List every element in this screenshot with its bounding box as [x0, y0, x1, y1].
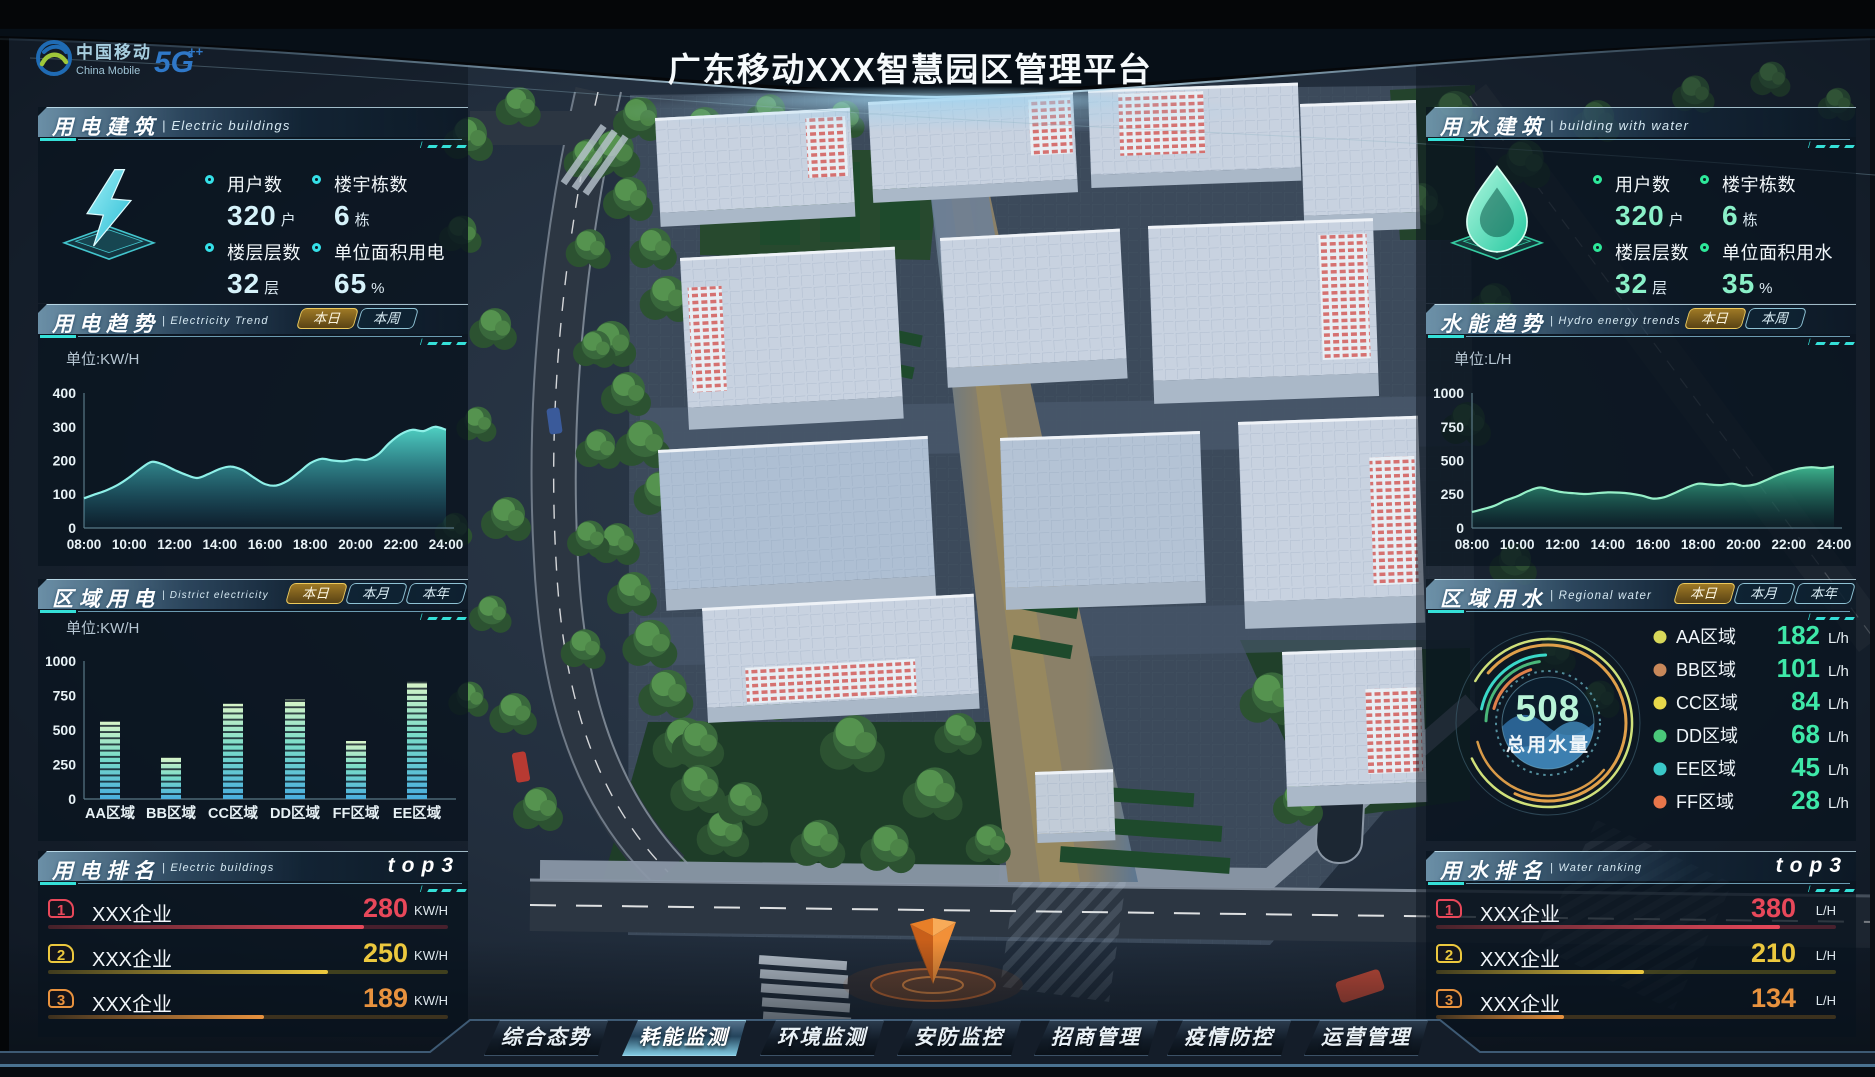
svg-text:12:00: 12:00: [157, 537, 192, 552]
svg-text:84: 84: [1791, 686, 1820, 716]
svg-text:L/h: L/h: [1828, 729, 1849, 746]
svg-text:L/h: L/h: [1828, 663, 1849, 680]
svg-text:20:00: 20:00: [338, 537, 373, 552]
svg-text:BB区域: BB区域: [146, 804, 196, 822]
svg-text:22:00: 22:00: [384, 537, 419, 552]
svg-text:750: 750: [53, 688, 77, 704]
svg-text:1000: 1000: [1434, 386, 1464, 401]
svg-text:DD区域: DD区域: [270, 804, 320, 822]
svg-text:14:00: 14:00: [1591, 537, 1626, 552]
svg-text:45: 45: [1791, 752, 1820, 782]
svg-text:500: 500: [1441, 453, 1465, 469]
svg-text:10:00: 10:00: [1500, 537, 1535, 552]
svg-text:200: 200: [53, 453, 77, 469]
svg-text:L/h: L/h: [1828, 630, 1849, 647]
svg-text:24:00: 24:00: [429, 537, 464, 552]
svg-text:单位:KW/H: 单位:KW/H: [66, 620, 139, 637]
svg-text:总用水量: 总用水量: [1506, 733, 1590, 756]
svg-text:14:00: 14:00: [203, 537, 238, 552]
svg-text:BB区域: BB区域: [1676, 660, 1736, 680]
svg-text:10:00: 10:00: [112, 537, 147, 552]
svg-text:DD区域: DD区域: [1676, 726, 1738, 746]
svg-text:20:00: 20:00: [1726, 537, 1761, 552]
svg-text:FF区域: FF区域: [333, 804, 380, 822]
svg-text:100: 100: [53, 486, 77, 502]
svg-text:China Mobile: China Mobile: [76, 65, 140, 77]
svg-text:中国移动: 中国移动: [76, 42, 152, 62]
svg-text:FF区域: FF区域: [1676, 792, 1734, 812]
svg-text:508: 508: [1516, 688, 1581, 729]
svg-text:L/h: L/h: [1828, 762, 1849, 779]
svg-text:250: 250: [53, 757, 77, 773]
svg-text:24:00: 24:00: [1817, 537, 1852, 552]
svg-text:12:00: 12:00: [1545, 537, 1580, 552]
svg-text:18:00: 18:00: [1681, 537, 1716, 552]
svg-text:28: 28: [1791, 785, 1820, 815]
svg-text:08:00: 08:00: [1455, 537, 1490, 552]
svg-text:EE区域: EE区域: [393, 804, 442, 822]
svg-text:08:00: 08:00: [67, 537, 102, 552]
svg-text:EE区域: EE区域: [1676, 759, 1736, 779]
svg-text:400: 400: [53, 386, 77, 401]
svg-text:AA区域: AA区域: [1676, 627, 1736, 647]
svg-text:AA区域: AA区域: [85, 804, 135, 822]
svg-text:18:00: 18:00: [293, 537, 328, 552]
svg-text:500: 500: [53, 722, 77, 738]
svg-text:0: 0: [68, 791, 76, 807]
svg-text:182: 182: [1777, 620, 1820, 650]
svg-text:68: 68: [1791, 719, 1820, 749]
svg-text:CC区域: CC区域: [208, 804, 258, 822]
svg-text:0: 0: [68, 520, 76, 536]
svg-text:16:00: 16:00: [248, 537, 283, 552]
svg-text:L/h: L/h: [1828, 696, 1849, 713]
svg-text:750: 750: [1441, 419, 1465, 435]
svg-text:22:00: 22:00: [1772, 537, 1807, 552]
svg-text:L/h: L/h: [1828, 795, 1849, 812]
svg-text:++: ++: [188, 44, 204, 59]
svg-text:CC区域: CC区域: [1676, 693, 1738, 713]
svg-text:16:00: 16:00: [1636, 537, 1671, 552]
svg-text:1000: 1000: [46, 653, 76, 669]
svg-text:250: 250: [1441, 486, 1465, 502]
svg-text:101: 101: [1777, 653, 1820, 683]
svg-text:0: 0: [1456, 520, 1464, 536]
svg-text:300: 300: [53, 419, 77, 435]
svg-text:广东移动XXX智慧园区管理平台: 广东移动XXX智慧园区管理平台: [668, 51, 1153, 88]
